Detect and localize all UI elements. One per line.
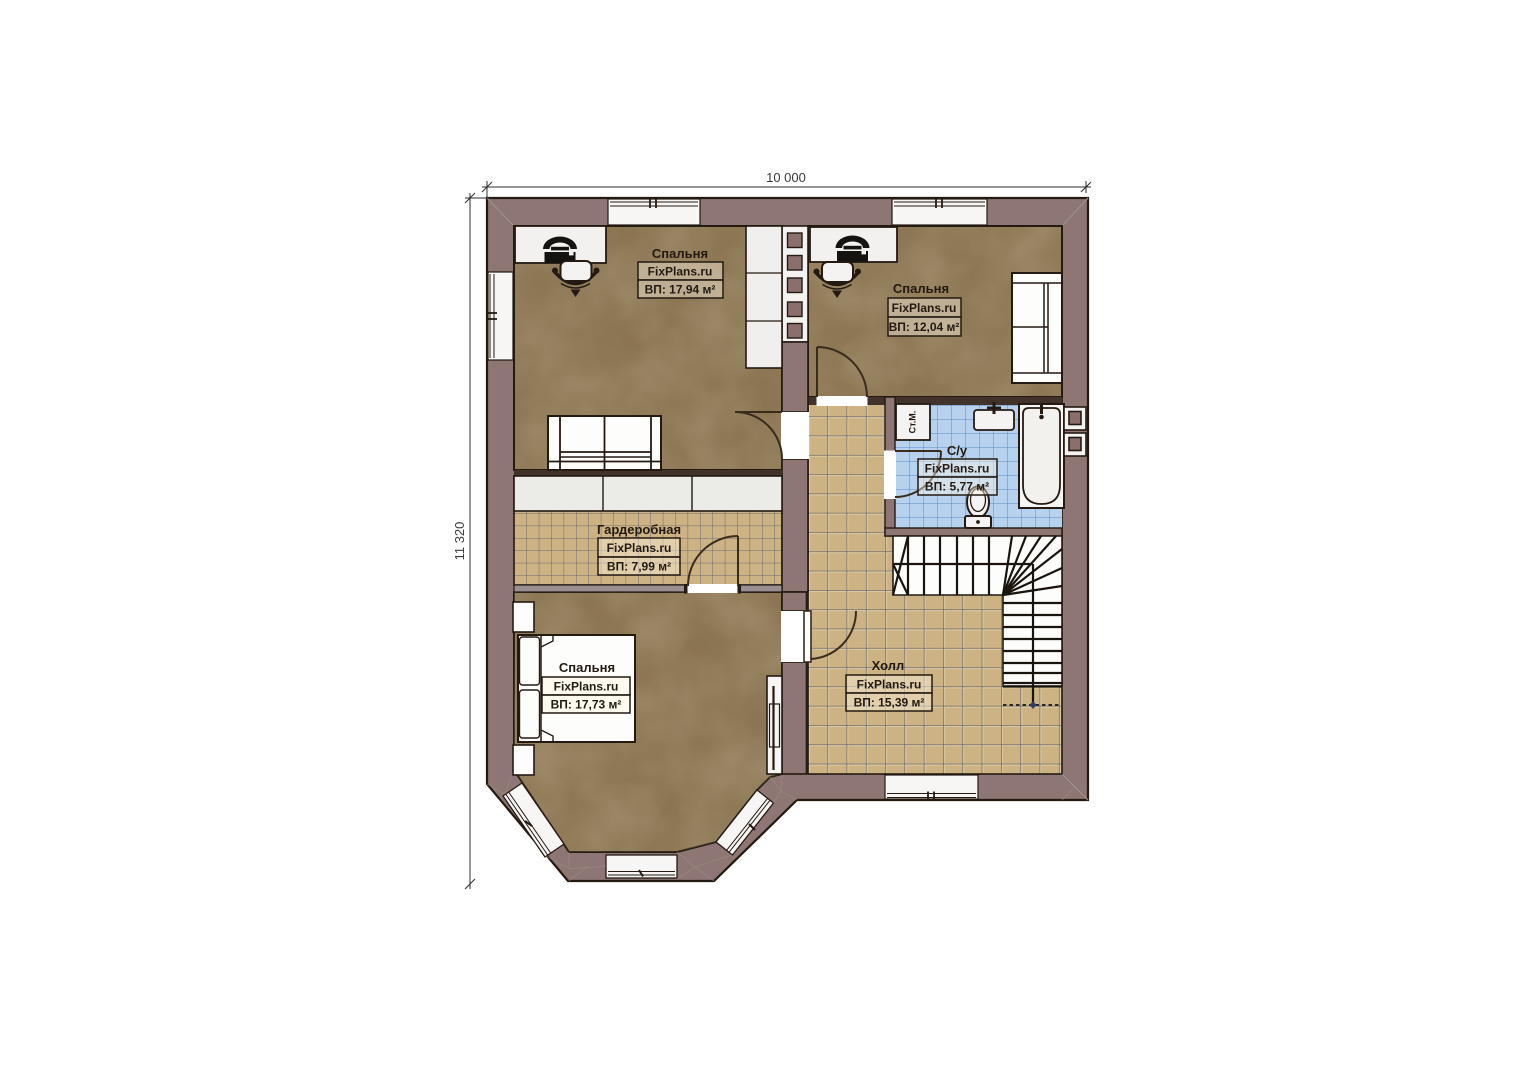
svg-text:Спальня: Спальня — [893, 281, 949, 296]
svg-text:Ст.М.: Ст.М. — [907, 411, 917, 434]
svg-text:FixPlans.ru: FixPlans.ru — [648, 265, 713, 279]
svg-text:ВП: 17,94 м²: ВП: 17,94 м² — [645, 283, 716, 297]
svg-text:Гардеробная: Гардеробная — [597, 522, 681, 537]
svg-text:10 000: 10 000 — [766, 170, 806, 185]
svg-text:11 320: 11 320 — [452, 522, 467, 561]
svg-text:ВП: 17,73 м²: ВП: 17,73 м² — [551, 698, 622, 712]
svg-text:С/у: С/у — [947, 443, 968, 458]
svg-text:Спальня: Спальня — [559, 660, 615, 675]
svg-text:FixPlans.ru: FixPlans.ru — [554, 680, 619, 694]
svg-text:ВП: 5,77 м²: ВП: 5,77 м² — [925, 480, 989, 494]
svg-text:Холл: Холл — [872, 658, 905, 673]
svg-text:ВП: 7,99 м²: ВП: 7,99 м² — [607, 560, 671, 574]
svg-text:ВП: 12,04 м²: ВП: 12,04 м² — [889, 320, 960, 334]
svg-text:Спальня: Спальня — [652, 246, 708, 261]
svg-text:FixPlans.ru: FixPlans.ru — [857, 678, 922, 692]
svg-text:FixPlans.ru: FixPlans.ru — [925, 462, 990, 476]
svg-text:ВП: 15,39 м²: ВП: 15,39 м² — [854, 696, 925, 710]
svg-text:FixPlans.ru: FixPlans.ru — [892, 301, 957, 315]
svg-text:FixPlans.ru: FixPlans.ru — [607, 541, 672, 555]
